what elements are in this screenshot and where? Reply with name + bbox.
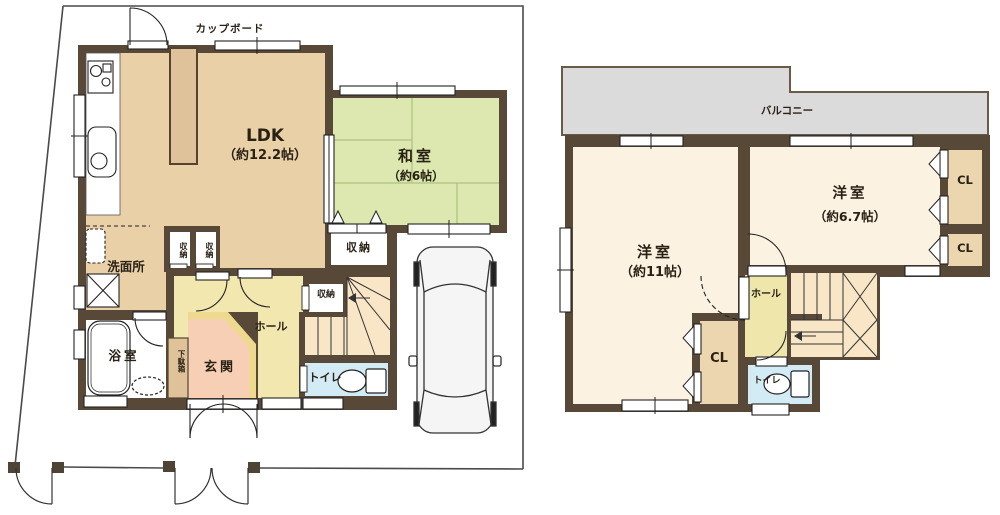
room-label-storage-washitsu: 収納 (332, 242, 386, 254)
room-area-washitsu: （約6帖） (361, 170, 471, 183)
balcony-label: バルコニー (750, 106, 824, 118)
room-label-storage-stairs: 収納 (308, 291, 344, 301)
room-label-cl-top: CL (950, 174, 980, 187)
room-label-hall-2f: ホール (746, 289, 786, 300)
room-label-closet-left: 収納 (173, 235, 187, 265)
room-label-toilet-1f: トイレ (305, 372, 345, 384)
room-label-ldk: LDK (200, 127, 330, 146)
room-area-bedroom2: （約6.7帖） (793, 210, 907, 224)
room-label-bedroom1: 洋室 (605, 244, 705, 261)
room-area-bedroom1: （約11帖） (595, 266, 715, 280)
balcony (562, 67, 988, 135)
floor-plan-page: カップボード LDK （約12.2帖） 和室 （約6帖） 収納 収納 収納 収納… (0, 0, 1000, 515)
room-label-bedroom2: 洋室 (800, 187, 900, 203)
toilet-fixture-1f (338, 369, 386, 393)
floor-plan-drawing (0, 0, 1000, 515)
room-label-yokushitsu: 浴室 (94, 349, 154, 363)
room-label-getabako: 下駄箱 (172, 341, 185, 381)
room-label-cl-mid: CL (950, 242, 980, 255)
room-label-toilet-2f: トイレ (749, 377, 785, 387)
room-area-ldk: （約12.2帖） (190, 149, 340, 163)
cupboard-label: カップボード (180, 24, 280, 36)
room-label-senmenjo: 洗面所 (90, 260, 162, 274)
cupboard (170, 48, 197, 164)
room-label-genkan: 玄関 (194, 361, 246, 375)
room-label-cl-left: CL (704, 352, 734, 366)
room-label-washitsu: 和室 (366, 148, 466, 165)
car (409, 247, 501, 433)
room-label-hall-1f: ホール (248, 321, 294, 333)
room-label-closet-right: 収納 (199, 235, 213, 265)
